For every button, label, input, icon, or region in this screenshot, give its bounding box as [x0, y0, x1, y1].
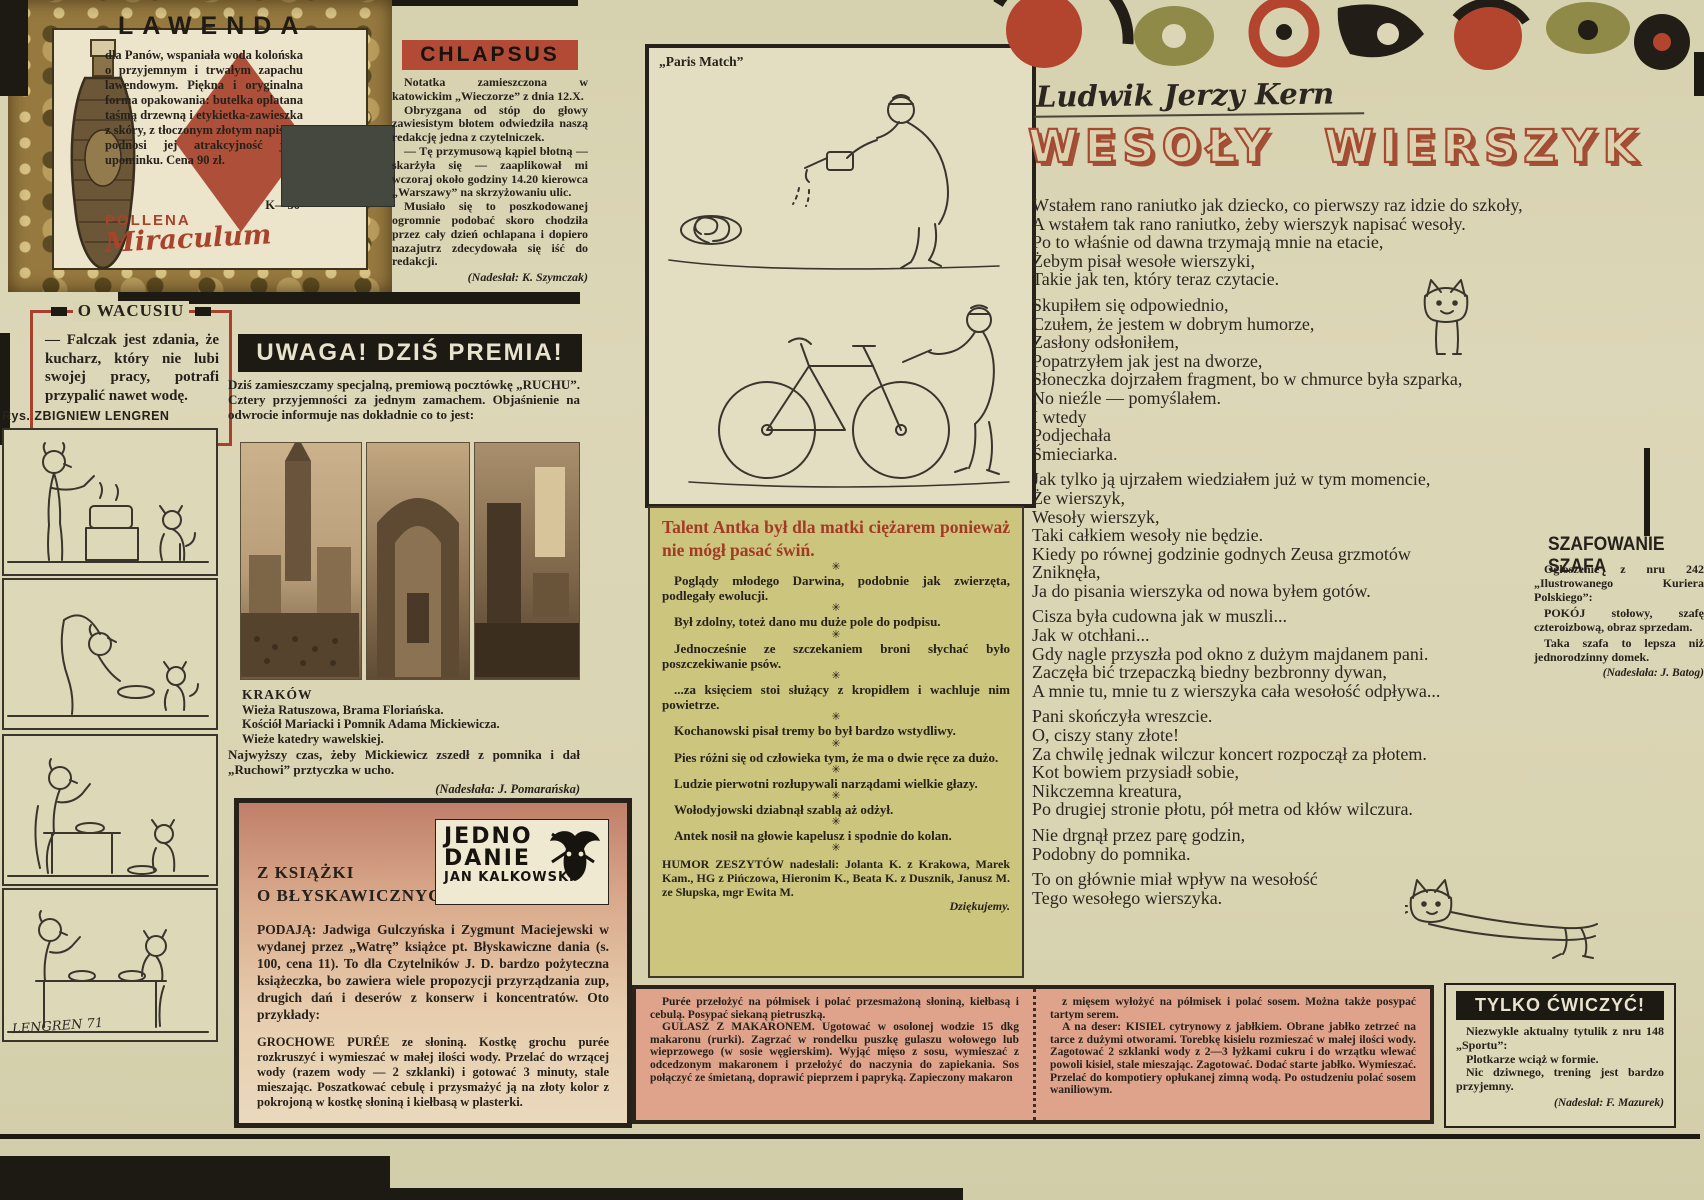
humor-item: Antek nosił na głowie kapelusz i spodnie… [662, 828, 1010, 843]
photo-caption-lines: Wieża Ratuszowa, Brama Floriańska. Kości… [242, 703, 582, 747]
tylko-cwiczyc-box: TYLKO ĆWICZYĆ! Niezwykle aktualny tytuli… [1444, 983, 1676, 1128]
o-wacusiu-box: O WACUSIU — Falczak jest zdania, że kuch… [30, 310, 232, 446]
photo-caption: KRAKÓW Wieża Ratuszowa, Brama Floriańska… [242, 688, 582, 746]
humor-zeszytow-box: Talent Antka był dla matki ciężarem poni… [648, 506, 1024, 978]
poem-title: WESOŁY WIERSZYK [1028, 120, 1688, 173]
asterisk-separator: ✳ [662, 630, 1010, 641]
bottom-rule [0, 1134, 1700, 1139]
jedno-danie-logo: JEDNO DANIE JAN KALKOWSKI [435, 819, 609, 905]
asterisk-separator: ✳ [662, 712, 1010, 723]
humor-thanks: Dziękujemy. [662, 899, 1010, 914]
ksiazka-recipe: GROCHOWE PURÉE ze słoniną. Kostkę grochu… [257, 1035, 609, 1110]
comic-panel-3 [2, 734, 218, 886]
magazine-page: LAWENDA dla Panów, wspaniała woda kolońs… [0, 0, 1704, 1200]
tylko-credit: (Nadesłał: F. Mazurek) [1456, 1097, 1664, 1109]
tylko-banner: TYLKO ĆWICZYĆ! [1456, 991, 1664, 1020]
uwaga-banner: UWAGA! DZIŚ PREMIA! [238, 334, 582, 372]
ksiazka-title-line2: O BŁYSKAWICZNYCH [257, 884, 456, 907]
uwaga-comment: Najwyższy czas, żeby Mickiewicz zszedł z… [228, 748, 580, 778]
paris-match-cartoon-box: „Paris Match” [645, 44, 1036, 508]
bottom-thin-black-bar [388, 1188, 963, 1200]
asterisk-separator: ✳ [662, 791, 1010, 802]
chlapsus-paragraph: — Tę przymusową kąpiel błotną — skarżyła… [392, 145, 588, 200]
humor-item: Kochanowski pisał tremy bo był bardzo ws… [662, 723, 1010, 738]
humor-item: Poglądy młodego Darwina, podobnie jak zw… [662, 573, 1010, 603]
dash-decoration-left [51, 307, 67, 316]
szafowanie-paragraph: Taka szafa to lepsza niż jednorodzinny d… [1534, 636, 1704, 664]
poem-stanza: Nie drgnął przez parę godzin, Podobny do… [1032, 826, 1672, 863]
ksiazka-title: Z KSIĄŻKI O BŁYSKAWICZNYCH [257, 861, 456, 907]
krakow-photo-hall [474, 442, 580, 680]
chlapsus-header: CHLAPSUS [402, 40, 578, 70]
chlapsus-article: Notatka zamieszczona w katowickim „Wiecz… [392, 76, 588, 285]
asterisk-separator: ✳ [662, 765, 1010, 776]
ksiazka-title-line1: Z KSIĄŻKI [257, 861, 456, 884]
chlapsus-paragraph: Notatka zamieszczona w katowickim „Wiecz… [392, 76, 588, 104]
pollena-miraculum-logo: POLLENA Miraculum [105, 212, 295, 254]
o-wacusiu-header: O WACUSIU [33, 301, 229, 321]
krakow-photo-interior [366, 442, 470, 680]
asterisk-separator: ✳ [662, 739, 1010, 750]
cat-doodle-standing [1415, 276, 1479, 358]
szafowanie-article: Ogłoszenie z nru 242 „Ilustrowanego Kuri… [1534, 562, 1704, 680]
asterisk-separator: ✳ [662, 603, 1010, 614]
humor-item: Wołodyjowski dziabnął szablą aż odżył. [662, 802, 1010, 817]
uwaga-intro: Dziś zamieszczamy specjalną, premiową po… [228, 378, 580, 422]
asterisk-separator: ✳ [662, 562, 1010, 573]
illustrator-credit: Rys. ZBIGNIEW LENGREN [2, 409, 169, 423]
humor-credits: HUMOR ZESZYTÓW nadesłali: Jolanta K. z K… [662, 857, 1010, 899]
tylko-paragraph: Nic dziwnego, trening jest bardzo przyje… [1456, 1066, 1664, 1094]
dash-decoration-right [195, 307, 211, 316]
chlapsus-credit: (Nadesłał: K. Szymczak) [392, 271, 588, 285]
asterisk-separator: ✳ [662, 843, 1010, 854]
jedno-danie-box: Z KSIĄŻKI O BŁYSKAWICZNYCH JEDNO DANIE J… [234, 798, 632, 1128]
bull-head-icon [544, 824, 606, 884]
recipe-paragraph: GULASZ Z MAKARONEM. Ugotować w osolonej … [650, 1021, 1019, 1084]
cat-doodle-lying [1405, 872, 1605, 964]
asterisk-separator: ✳ [662, 671, 1010, 682]
humor-title: Talent Antka był dla matki ciężarem poni… [662, 516, 1010, 562]
cartoon-drawing [649, 48, 1024, 496]
szafowanie-credit: (Nadesłała: J. Batog) [1534, 666, 1704, 680]
humor-item: Pies różni się od człowieka tym, że ma o… [662, 750, 1010, 765]
masthead-artwork [978, 0, 1704, 76]
recipe-paragraph: A na deser: KISIEL cytrynowy z jabłkiem.… [1050, 1021, 1416, 1097]
chlapsus-paragraph: Musiało się to poszkodowanej ogromnie po… [392, 200, 588, 269]
uwaga-credit: (Nadesłała: J. Pomarańska) [340, 782, 580, 797]
poem-author: Ludwik Jerzy Kern [1034, 76, 1365, 117]
o-wacusiu-title: O WACUSIU [73, 301, 189, 321]
comic-panel-4: LENGREN 71 [2, 888, 218, 1042]
poem-stanza: Wstałem rano raniutko jak dziecko, co pi… [1032, 196, 1672, 289]
poem-stanza: Pani skończyła wreszcie. O, ciszy stany … [1032, 707, 1672, 819]
column-divider-rule [1644, 448, 1650, 536]
recipe-paragraph: Purée przełożyć na półmisek i polać prze… [650, 996, 1019, 1021]
tylko-paragraph: Plotkarze wciąż w formie. [1456, 1053, 1664, 1067]
comic-panel-2 [2, 578, 218, 730]
recipes-right-column: z mięsem wyłożyć na półmisek i polać sos… [1033, 989, 1430, 1120]
humor-item: Był zdolny, toteż dano mu duże pole do p… [662, 614, 1010, 629]
comic-panel-1 [2, 428, 218, 576]
grey-tape-decoration [282, 126, 394, 206]
recipes-left-column: Purée przełożyć na półmisek i polać prze… [636, 989, 1033, 1120]
top-rule [392, 0, 578, 6]
ksiazka-intro: PODAJĄ: Jadwiga Gulczyńska i Zygmunt Mac… [257, 921, 609, 1023]
humor-item: Jednocześnie ze szczekaniem broni słycha… [662, 641, 1010, 671]
humor-item: ...za księciem stoi służący z kropidłem … [662, 682, 1010, 712]
szafowanie-paragraph: POKÓJ stołowy, szafę czteroizbową, obraz… [1534, 606, 1704, 634]
recipes-box: Purée przełożyć na półmisek i polać prze… [632, 985, 1434, 1124]
szafowanie-paragraph: Ogłoszenie z nru 242 „Ilustrowanego Kuri… [1534, 562, 1704, 604]
lawenda-title: LAWENDA [118, 12, 308, 41]
krakow-photo-tower [240, 442, 362, 680]
o-wacusiu-text: — Falczak jest zdania, że kucharz, który… [33, 313, 229, 405]
asterisk-separator: ✳ [662, 817, 1010, 828]
tylko-paragraph: Niezwykle aktualny tytulik z nru 148 „Sp… [1456, 1025, 1664, 1053]
lawenda-body: dla Panów, wspaniała woda kolońska o prz… [105, 48, 303, 168]
cartoon-caption: „Paris Match” [659, 54, 743, 70]
humor-item: Ludzie pierwotni rozłupywali narządami w… [662, 776, 1010, 791]
chlapsus-paragraph: Obryzgana od stóp do głowy zawiesistym b… [392, 104, 588, 145]
photo-caption-title: KRAKÓW [242, 688, 582, 703]
recipe-paragraph: z mięsem wyłożyć na półmisek i polać sos… [1050, 996, 1416, 1021]
bottom-left-black-bar [0, 1156, 390, 1200]
corner-black-mark [0, 0, 28, 96]
poem-stanza: Skupiłem się odpowiednio, Czułem, że jes… [1032, 296, 1672, 463]
